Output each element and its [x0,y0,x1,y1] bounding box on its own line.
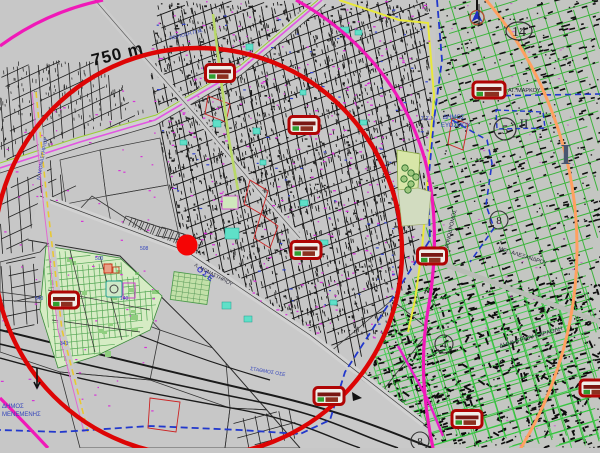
svg-text:4: 4 [441,339,447,351]
svg-text:II: II [520,116,529,131]
svg-text:14: 14 [512,25,526,40]
svg-text:140: 140 [120,296,129,302]
svg-text:8: 8 [496,215,502,227]
svg-text:Σ.Σ.Μ.: Σ.Σ.Μ. [421,116,437,122]
svg-text:ΔΗΜΟΣ: ΔΗΜΟΣ [443,115,465,121]
svg-text:508: 508 [140,246,149,252]
svg-text:8: 8 [417,436,423,448]
svg-text:ΑΓ. ΜΑΡΚΟΥ: ΑΓ. ΜΑΡΚΟΥ [508,88,541,94]
svg-text:ΕΥΟΣΜΟΥ: ΕΥΟΣΜΟΥ [441,123,471,129]
svg-text:ΜΕΝΕΜΕΝΗΣ: ΜΕΝΕΜΕΝΗΣ [2,412,41,418]
svg-text:500: 500 [95,256,104,262]
svg-text:540: 540 [35,296,44,302]
svg-text:I: I [561,140,572,171]
svg-text:343: 343 [60,341,69,347]
svg-text:5: 5 [502,122,509,137]
svg-text:ΔΗΜΟΣ: ΔΗΜΟΣ [2,404,24,410]
